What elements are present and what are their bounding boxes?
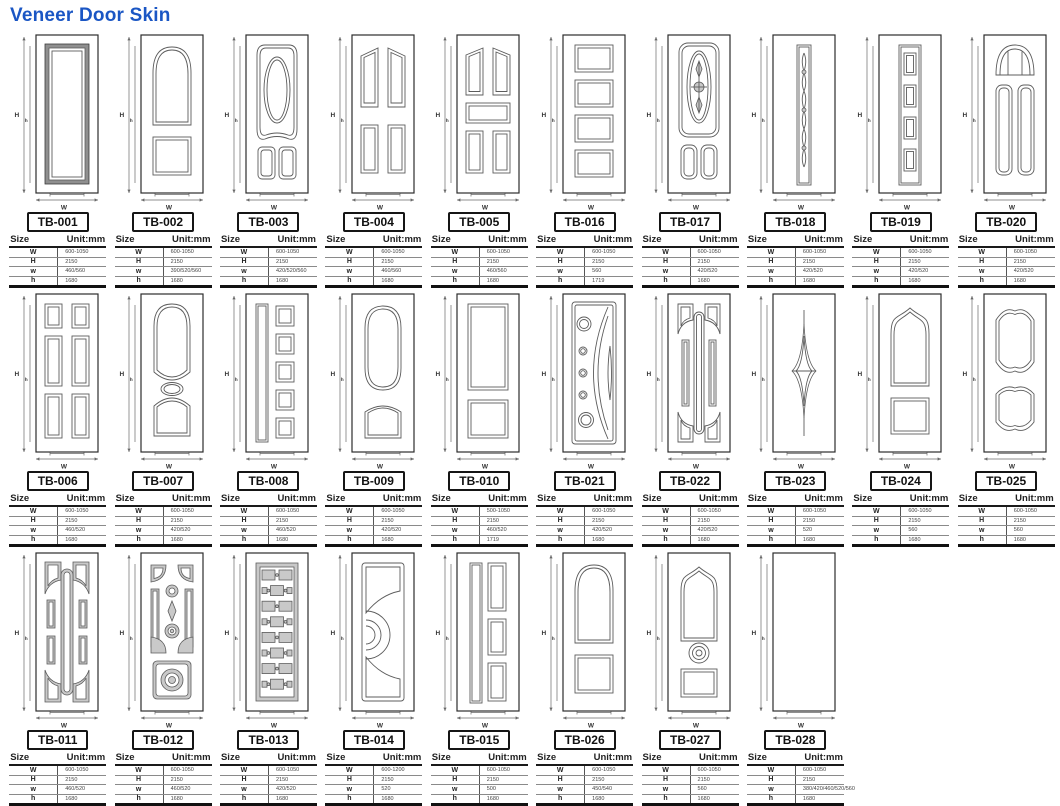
size-row: w420/520/560 (220, 267, 317, 277)
size-row-key: w (852, 267, 901, 277)
height-dim-label: H (541, 630, 546, 637)
door-card: H h W w TB-024 Size Unit:mm W60 (848, 292, 953, 547)
door-art (879, 35, 941, 193)
size-table-header-unit: Unit:mm (58, 234, 107, 247)
size-row: w460/520 (9, 526, 106, 536)
inner-height-dim-label: h (24, 118, 27, 124)
size-row-key: H (536, 775, 585, 785)
size-table-header-size: Size (536, 234, 585, 247)
door-model-label: TB-017 (659, 212, 721, 232)
size-row-key: h (325, 535, 374, 546)
size-row-key: W (220, 765, 269, 775)
size-row-value: 600-1050 (268, 506, 317, 516)
door-size-table: Size Unit:mm W600-1050H2150w460/520h1680 (115, 752, 212, 806)
door-size-table: Size Unit:mm W600-1050H2150w460/560h1680 (325, 234, 422, 288)
size-row: W600-1050 (220, 247, 317, 257)
width-dim-label: W (271, 464, 278, 471)
size-row-value: 1680 (374, 276, 423, 287)
door-art (36, 553, 98, 711)
door-model-label: TB-007 (132, 471, 194, 491)
height-dim-label: H (857, 112, 862, 119)
size-table-header-size: Size (852, 493, 901, 506)
size-table-header-unit: Unit:mm (795, 752, 844, 765)
size-row-key: h (536, 794, 585, 805)
size-row-value: 420/520 (163, 526, 212, 536)
size-row: H2150 (747, 516, 844, 526)
door-model-label: TB-028 (764, 730, 826, 750)
size-row-key: h (220, 276, 269, 287)
door-drawing-capsule-corner-panels: H h W w (646, 292, 734, 470)
inner-height-dim-label: h (235, 377, 238, 383)
door-art (246, 553, 308, 711)
size-row-value: 2150 (479, 516, 528, 526)
size-row-key: w (958, 526, 1007, 536)
size-row-key: H (220, 257, 269, 267)
size-row: h1680 (958, 276, 1055, 287)
door-size-table: Size Unit:mm W600-1050H2150w560h1680 (642, 752, 739, 806)
size-table-header-unit: Unit:mm (690, 493, 739, 506)
size-table-header-size: Size (431, 234, 480, 247)
size-table-header-unit: Unit:mm (479, 493, 528, 506)
door-size-table: Size Unit:mm W600-1050H2150w420/520h1680 (852, 234, 949, 288)
size-row-key: H (431, 257, 480, 267)
size-row: h1680 (325, 794, 422, 805)
size-row: w420/520 (747, 267, 844, 277)
size-table-header-size: Size (9, 493, 58, 506)
size-row: h1680 (747, 535, 844, 546)
size-row-value: 2150 (268, 257, 317, 267)
size-row: h1680 (431, 276, 528, 287)
door-art (984, 294, 1046, 452)
size-row-value: 460/560 (374, 267, 423, 277)
inner-height-dim-label: h (446, 118, 449, 124)
door-drawing-braid-strip: H h W w (751, 33, 839, 211)
size-row-value: 600-1050 (479, 765, 528, 775)
size-row-value: 2150 (1006, 257, 1055, 267)
size-table-header-size: Size (536, 752, 585, 765)
door-size-table: Size Unit:mm W600-1050H2150w390/520/560h… (115, 234, 212, 288)
door-drawing-strip-five-squares: H h W w (224, 292, 312, 470)
height-dim-label: H (647, 630, 652, 637)
size-row-value: 1680 (479, 276, 528, 287)
door-drawing-arch-top-two-panel: H h W w (541, 551, 629, 729)
door-card: H h W w TB-013 Size Unit:mm W600-105 (216, 551, 321, 806)
size-row-value: 600-1050 (268, 765, 317, 775)
width-dim-label: W (693, 464, 700, 471)
size-table-header-unit: Unit:mm (374, 752, 423, 765)
size-row-key: h (642, 276, 691, 287)
door-art (563, 294, 625, 452)
size-row: h1680 (536, 535, 633, 546)
size-row-value: 460/560 (479, 267, 528, 277)
size-row-value: 500-1050 (479, 506, 528, 516)
size-row: W600-1050 (536, 247, 633, 257)
size-row-key: H (852, 516, 901, 526)
size-row-key: W (642, 765, 691, 775)
size-row-key: w (536, 267, 585, 277)
size-row: H2150 (220, 775, 317, 785)
size-row-key: W (325, 765, 374, 775)
size-table-header-size: Size (642, 493, 691, 506)
size-table-header-size: Size (220, 234, 269, 247)
size-row: w420/520 (642, 526, 739, 536)
size-table-header-unit: Unit:mm (795, 493, 844, 506)
size-row-value: 2150 (58, 257, 107, 267)
size-row-value: 600-1050 (795, 247, 844, 257)
size-row-value: 600-1050 (268, 247, 317, 257)
door-row-2: H h W w TB-006 Size Unit:mm W600-105 (0, 292, 1060, 547)
door-art (668, 35, 730, 193)
size-row: h1680 (9, 794, 106, 805)
size-table-header-unit: Unit:mm (374, 234, 423, 247)
inner-height-dim-label: h (657, 636, 660, 642)
size-table-header-size: Size (747, 752, 796, 765)
size-row-key: W (642, 247, 691, 257)
size-row-key: h (9, 535, 58, 546)
size-row: W600-1050 (325, 506, 422, 516)
size-row: h1680 (642, 276, 739, 287)
size-row-key: h (115, 794, 164, 805)
door-card: H h W w TB-002 Size Unit:mm W600-105 (110, 33, 215, 288)
size-row: H2150 (642, 775, 739, 785)
door-art (141, 294, 203, 452)
door-art (773, 35, 835, 193)
door-art (563, 553, 625, 711)
size-row-value: 460/560 (58, 267, 107, 277)
size-table-header-size: Size (115, 752, 164, 765)
inner-height-dim-label: h (973, 377, 976, 383)
size-row: h1680 (9, 276, 106, 287)
size-table-header-size: Size (642, 234, 691, 247)
width-dim-label: W (166, 205, 173, 212)
size-row-value: 1680 (585, 794, 634, 805)
door-art (984, 35, 1046, 193)
door-art (352, 294, 414, 452)
size-row-key: h (431, 794, 480, 805)
door-model-label: TB-018 (764, 212, 826, 232)
door-drawing-four-panel: H h W w (330, 33, 418, 211)
size-table-header-size: Size (852, 234, 901, 247)
door-art (668, 553, 730, 711)
size-row-key: W (220, 506, 269, 516)
size-row: W600-1050 (642, 247, 739, 257)
size-table-header-size: Size (642, 752, 691, 765)
width-dim-label: W (693, 205, 700, 212)
size-row-value: 1680 (58, 794, 107, 805)
height-dim-label: H (963, 112, 968, 119)
size-row-key: H (325, 775, 374, 785)
size-row-key: h (325, 276, 374, 287)
size-row: w420/520 (325, 526, 422, 536)
size-row: H2150 (220, 516, 317, 526)
door-art (773, 553, 835, 711)
size-row: W600-1050 (115, 765, 212, 775)
door-skin-catalog: Veneer Door Skin H h W w TB-001 (0, 5, 1060, 806)
door-size-table: Size Unit:mm W600-1050H2150w420/520h1680 (220, 752, 317, 806)
door-art (773, 294, 835, 452)
door-card: H h W w TB-012 Size (110, 551, 215, 806)
door-card: H h W w TB-014 Size Unit:mm (321, 551, 426, 806)
size-row-value: 560 (1006, 526, 1055, 536)
size-table-header-size: Size (115, 234, 164, 247)
door-drawing-ornate-oval-two-arch: H h W w (646, 33, 734, 211)
size-row-value: 2150 (374, 257, 423, 267)
inner-height-dim-label: h (130, 118, 133, 124)
size-row: W600-1050 (747, 506, 844, 516)
size-row-key: h (220, 535, 269, 546)
door-drawing-circles-crescent: H h W w (541, 292, 629, 470)
size-row: h1719 (431, 535, 528, 546)
size-row-value: 420/520 (901, 267, 950, 277)
inner-height-dim-label: h (446, 636, 449, 642)
size-row-key: H (747, 516, 796, 526)
size-row-key: w (958, 267, 1007, 277)
size-row-value: 2150 (795, 516, 844, 526)
size-row-key: W (325, 247, 374, 257)
size-row-key: w (115, 267, 164, 277)
size-row-value: 1680 (58, 276, 107, 287)
door-model-label: TB-020 (975, 212, 1037, 232)
size-row: H2150 (536, 516, 633, 526)
size-row-value: 600-1050 (163, 247, 212, 257)
size-row: W600-1050 (958, 247, 1055, 257)
size-row-key: W (852, 506, 901, 516)
inner-height-dim-label: h (446, 377, 449, 383)
door-size-table: Size Unit:mm W600-1050H2150w500h1680 (431, 752, 528, 806)
size-table-header-size: Size (220, 493, 269, 506)
size-row-key: w (642, 267, 691, 277)
size-row: H2150 (852, 516, 949, 526)
size-row-value: 420/520 (374, 526, 423, 536)
size-row-value: 420/520 (690, 267, 739, 277)
door-model-label: TB-004 (343, 212, 405, 232)
size-row-value: 600-1050 (690, 247, 739, 257)
size-row: H2150 (747, 775, 844, 785)
size-row-value: 600-1050 (690, 506, 739, 516)
width-dim-label: W (377, 723, 384, 730)
size-table-header-unit: Unit:mm (585, 493, 634, 506)
height-dim-label: H (752, 630, 757, 637)
inner-height-dim-label: h (657, 118, 660, 124)
height-dim-label: H (647, 112, 652, 119)
door-size-table: Size Unit:mm W600-1050H2150w460/520h1680 (9, 493, 106, 547)
door-row-3: H h W w TB-011 Size (0, 551, 1060, 806)
size-row-key: H (747, 775, 796, 785)
size-row-key: h (220, 794, 269, 805)
inner-height-dim-label: h (235, 636, 238, 642)
width-dim-label: W (377, 205, 384, 212)
door-size-table: Size Unit:mm W600-1050H2150w420/520/560h… (220, 234, 317, 288)
size-row: w390/520/560 (115, 267, 212, 277)
door-card: H h W w TB-003 Size Unit:mm (216, 33, 321, 288)
size-row-value: 2150 (479, 775, 528, 785)
width-dim-label: W (904, 464, 911, 471)
size-row-value: 1680 (690, 276, 739, 287)
size-row: w460/520 (220, 526, 317, 536)
size-row: w460/560 (431, 267, 528, 277)
height-dim-label: H (120, 371, 125, 378)
size-row-value: 2150 (163, 775, 212, 785)
inner-height-dim-label: h (868, 118, 871, 124)
size-row: H2150 (220, 257, 317, 267)
door-model-label: TB-023 (764, 471, 826, 491)
size-row: h1680 (852, 276, 949, 287)
size-row-value: 1719 (585, 276, 634, 287)
door-drawing-ornate-maze: H h W w (119, 551, 207, 729)
size-table-header-unit: Unit:mm (690, 234, 739, 247)
size-table-header-size: Size (536, 493, 585, 506)
size-row-key: h (431, 276, 480, 287)
size-row: H2150 (9, 257, 106, 267)
size-table-header-unit: Unit:mm (585, 234, 634, 247)
door-drawing-arch-top-two-panel: H h W w (119, 33, 207, 211)
size-row-value: 1680 (163, 535, 212, 546)
size-table-header-unit: Unit:mm (479, 752, 528, 765)
door-card: H h W w TB-020 Size Unit:mm (954, 33, 1059, 288)
height-dim-label: H (541, 112, 546, 119)
size-row-key: H (642, 516, 691, 526)
size-row-value: 1680 (268, 276, 317, 287)
size-row-key: h (325, 794, 374, 805)
height-dim-label: H (225, 630, 230, 637)
size-row: h1680 (958, 535, 1055, 546)
size-row-key: H (536, 257, 585, 267)
inner-height-dim-label: h (973, 118, 976, 124)
door-drawing-single-panel-dark: H h W w (14, 33, 102, 211)
height-dim-label: H (436, 112, 441, 119)
size-row-key: w (431, 267, 480, 277)
size-row-key: H (115, 257, 164, 267)
size-row-key: w (220, 267, 269, 277)
height-dim-label: H (225, 112, 230, 119)
height-dim-label: H (752, 371, 757, 378)
inner-height-dim-label: h (551, 377, 554, 383)
width-dim-label: W (482, 723, 489, 730)
size-row-value: 2150 (690, 516, 739, 526)
size-row-value: 420/520 (690, 526, 739, 536)
size-row: W600-1050 (431, 247, 528, 257)
size-table-header-size: Size (115, 493, 164, 506)
size-table-header-unit: Unit:mm (901, 234, 950, 247)
door-model-label: TB-021 (554, 471, 616, 491)
door-model-label: TB-006 (27, 471, 89, 491)
size-row: H2150 (325, 516, 422, 526)
size-row: w520 (747, 526, 844, 536)
size-row-value: 1680 (479, 794, 528, 805)
size-table-header-size: Size (958, 234, 1007, 247)
door-art (352, 35, 414, 193)
door-card: H h W w TB-021 Size Uni (532, 292, 637, 547)
width-dim-label: W (588, 205, 595, 212)
size-row-value: 600-1050 (374, 247, 423, 257)
door-art (457, 35, 519, 193)
door-size-table: Size Unit:mm W600-1050H2150w380/420/460/… (747, 752, 844, 806)
size-row-key: W (325, 506, 374, 516)
door-art (352, 553, 414, 711)
door-drawing-oval-center-two-bottom: H h W w (224, 33, 312, 211)
size-row-value: 600-1050 (585, 765, 634, 775)
size-row-value: 2150 (374, 775, 423, 785)
size-row-key: h (9, 276, 58, 287)
size-row: H2150 (325, 775, 422, 785)
size-row: H2150 (431, 775, 528, 785)
size-row: h1680 (115, 535, 212, 546)
size-row-key: H (642, 257, 691, 267)
size-row-value: 1680 (690, 535, 739, 546)
size-row-key: w (9, 526, 58, 536)
size-row-key: W (220, 247, 269, 257)
door-drawing-two-panel: H h W w (435, 292, 523, 470)
door-art (246, 35, 308, 193)
size-row-key: h (852, 535, 901, 546)
inner-height-dim-label: h (657, 377, 660, 383)
door-size-table: Size Unit:mm W600-1050H2150w460/560h1680 (9, 234, 106, 288)
size-table-header-size: Size (220, 752, 269, 765)
width-dim-label: W (798, 464, 805, 471)
size-row: W600-1050 (9, 765, 106, 775)
door-size-table: Size Unit:mm W600-1050H2150w520h1680 (747, 493, 844, 547)
size-row-value: 2150 (268, 775, 317, 785)
size-row-key: H (642, 775, 691, 785)
size-table-header-unit: Unit:mm (58, 752, 107, 765)
size-row-value: 2150 (479, 257, 528, 267)
door-model-label: TB-013 (237, 730, 299, 750)
size-row-value: 2150 (690, 775, 739, 785)
inner-height-dim-label: h (762, 636, 765, 642)
size-row: W600-1050 (958, 506, 1055, 516)
size-table-header-unit: Unit:mm (690, 752, 739, 765)
door-art (246, 294, 308, 452)
size-row-value: 600-1050 (374, 506, 423, 516)
door-size-table: Size Unit:mm W500-1050H2150w460/520h1719 (431, 493, 528, 547)
inner-height-dim-label: h (235, 118, 238, 124)
size-table-header-unit: Unit:mm (374, 493, 423, 506)
size-row: h1680 (642, 535, 739, 546)
door-model-label: TB-008 (237, 471, 299, 491)
size-row-key: H (536, 516, 585, 526)
height-dim-label: H (120, 630, 125, 637)
size-row-key: W (9, 765, 58, 775)
door-art (668, 294, 730, 452)
size-row-key: H (325, 516, 374, 526)
width-dim-label: W (1009, 205, 1016, 212)
size-row-value: 600-1050 (901, 506, 950, 516)
inner-height-dim-label: h (762, 377, 765, 383)
door-model-label: TB-027 (659, 730, 721, 750)
door-drawing-strip-three-rects: H h W w (435, 551, 523, 729)
size-row-key: W (958, 506, 1007, 516)
size-row-key: h (747, 276, 796, 287)
size-row: h1680 (852, 535, 949, 546)
size-row-key: H (747, 257, 796, 267)
size-table-header-unit: Unit:mm (268, 752, 317, 765)
size-row: W600-1050 (642, 506, 739, 516)
size-row: h1680 (747, 794, 844, 805)
size-row: H2150 (536, 257, 633, 267)
size-row: H2150 (115, 257, 212, 267)
size-row-value: 600-1050 (1006, 506, 1055, 516)
size-table-header-unit: Unit:mm (163, 234, 212, 247)
size-row-key: W (431, 506, 480, 516)
size-row: h1680 (9, 535, 106, 546)
size-row-key: W (536, 506, 585, 516)
size-row-value: 420/520 (795, 267, 844, 277)
size-table-header-size: Size (325, 752, 374, 765)
size-table-header-size: Size (325, 234, 374, 247)
height-dim-label: H (752, 112, 757, 119)
door-model-label: TB-010 (448, 471, 510, 491)
size-table-header-size: Size (9, 752, 58, 765)
